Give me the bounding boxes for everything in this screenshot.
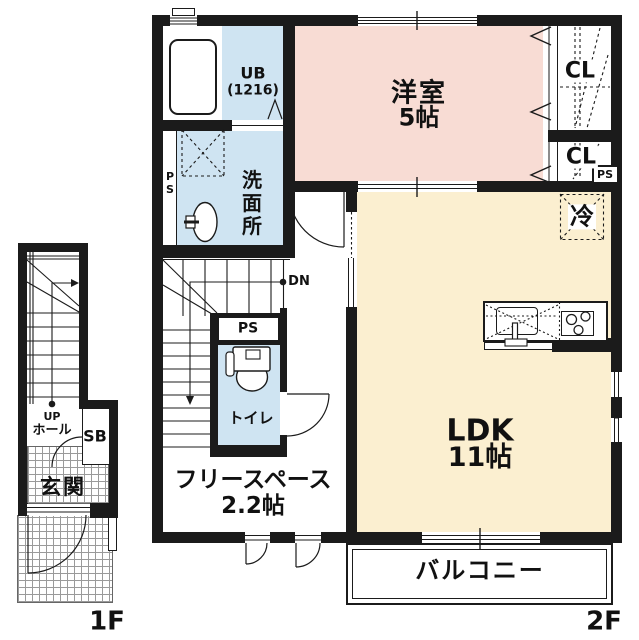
wall-washroom-bottom (163, 245, 295, 258)
label-ldk-size: 11帖 (448, 444, 513, 472)
free-space-door-arc-1 (246, 543, 267, 564)
label-washroom: 洗面所 (240, 170, 261, 239)
entrance-threshold (27, 504, 90, 516)
wall-ldk-left-upper (346, 192, 357, 212)
ldk-floor (357, 192, 611, 532)
label-ps-mid: PS (238, 322, 258, 337)
label-floor-2f: 2F (586, 608, 622, 635)
wall-1f-left (18, 243, 27, 516)
toilet-door-arc (287, 394, 329, 436)
porch-pillar (108, 517, 117, 551)
wall-1f-right-upper (79, 243, 88, 408)
label-hall: ホール (32, 424, 71, 438)
window-right-2 (611, 418, 622, 442)
kitchen-stove (561, 311, 594, 336)
window-ldk-left (346, 258, 357, 307)
wall-toilet-right-upper (280, 308, 287, 392)
label-western-room-size: 5帖 (399, 105, 440, 130)
washroom-floor (177, 131, 283, 245)
bathtub (170, 40, 216, 114)
wall-closet-mid (548, 130, 611, 142)
floor-plan: UB (1216) 洗面所 PS 洋室 5帖 CL CL PS 冷 LDK 11… (0, 0, 639, 640)
window-right-1 (611, 372, 622, 397)
toilet-floor (218, 345, 280, 445)
wall-ldk-left-lower (346, 307, 357, 532)
wall-ub-bottom (163, 120, 232, 131)
kitchen-sink (496, 307, 538, 335)
window-top-main (358, 15, 477, 26)
wall-2f-bottom (152, 532, 622, 543)
stairs-1f (27, 252, 79, 407)
label-free-space: フリースペース (174, 468, 331, 492)
window-west-ldk (358, 181, 477, 192)
label-balcony: バルコニー (415, 558, 545, 583)
label-dn: DN (288, 275, 310, 289)
label-ub: UB (240, 66, 265, 83)
wall-1f-right-lower (109, 400, 118, 518)
door-gap-ub (232, 120, 283, 131)
label-ps-corner: PS (597, 169, 613, 181)
vent-top-small (172, 8, 195, 16)
label-shoe-box: SB (83, 429, 107, 446)
wall-2f-left (152, 15, 163, 543)
wall-2f-right (611, 15, 622, 543)
wall-toilet-left (210, 313, 218, 457)
label-entrance: 玄関 (40, 476, 86, 498)
label-ub-size: (1216) (227, 84, 279, 99)
wall-1f-top (18, 243, 88, 252)
door-gap-free-1 (245, 532, 270, 543)
porch-tile (17, 515, 113, 603)
wall-ub-west-room (283, 26, 295, 258)
door-gap-free-2 (295, 532, 321, 543)
label-closet-lower: CL (564, 145, 598, 168)
ldk-door-arc (289, 192, 344, 247)
label-floor-1f: 1F (89, 608, 125, 635)
kitchen-counter-edge (484, 342, 553, 350)
window-balcony-sliding (422, 532, 540, 543)
label-fridge: 冷 (568, 204, 596, 229)
window-top-small (170, 15, 197, 26)
label-toilet: トイレ (228, 411, 273, 427)
label-up: UP (44, 411, 61, 423)
label-free-space-size: 2.2帖 (221, 494, 285, 518)
wall-1f-bottom-right (90, 503, 118, 518)
free-space-door-arc-2 (296, 543, 320, 567)
wall-toilet-bottom (210, 445, 287, 457)
label-ps-left: PS (163, 171, 177, 196)
label-closet-upper: CL (563, 59, 597, 82)
